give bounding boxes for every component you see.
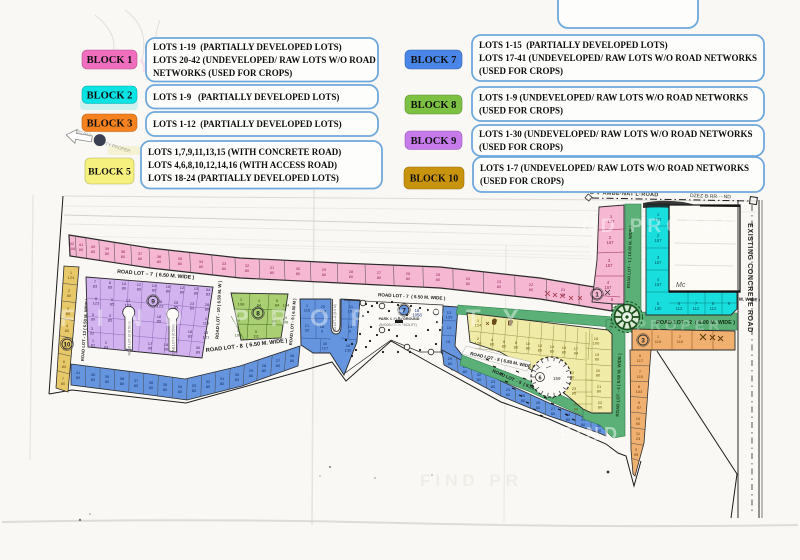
svg-text:LOTS 1-12 (PARTIALLY DEVELOPE: LOTS 1-12 (PARTIALLY DEVELOPED LOTS) <box>153 119 342 129</box>
svg-text:110: 110 <box>677 339 684 344</box>
svg-text:LOTS 17-41 (UNDEVELOPED/ RAW L: LOTS 17-41 (UNDEVELOPED/ RAW LOTS W/O RO… <box>479 53 757 63</box>
svg-text:112: 112 <box>710 306 717 311</box>
svg-text:LOTS 4,6,8,10,12,14,16 (WITH A: LOTS 4,6,8,10,12,14,16 (WITH ACCESS ROAD… <box>148 160 337 170</box>
svg-text:83: 83 <box>188 334 193 339</box>
svg-text:120: 120 <box>475 341 482 346</box>
svg-text:80: 80 <box>91 377 96 382</box>
svg-text:132: 132 <box>345 348 352 353</box>
svg-text:NETWORKS (USED FOR CROPS): NETWORKS (USED FOR CROPS) <box>153 68 292 78</box>
svg-text:80: 80 <box>105 251 110 256</box>
svg-text:Mc: Mc <box>676 282 686 289</box>
svg-text:108: 108 <box>235 333 242 338</box>
svg-text:117: 117 <box>322 346 329 351</box>
svg-text:112: 112 <box>676 306 683 311</box>
svg-text:121: 121 <box>203 335 210 340</box>
svg-text:80: 80 <box>163 387 168 392</box>
svg-text:80: 80 <box>235 377 240 382</box>
svg-text:80: 80 <box>79 247 84 252</box>
svg-text:80: 80 <box>105 379 110 384</box>
svg-text:157: 157 <box>606 263 614 268</box>
svg-text:80: 80 <box>121 254 126 259</box>
svg-text:BLOCK 9: BLOCK 9 <box>411 136 457 147</box>
svg-text:BLOCK 3: BLOCK 3 <box>87 118 133 129</box>
svg-text:80: 80 <box>406 276 411 281</box>
svg-text:157: 157 <box>655 282 663 287</box>
svg-text:80: 80 <box>550 349 555 354</box>
svg-text:1: 1 <box>595 292 599 299</box>
svg-text:80: 80 <box>61 381 66 386</box>
svg-text:LOTS 1,7,9,11,13,15 (WITH CONC: LOTS 1,7,9,11,13,15 (WITH CONCRETE ROAD) <box>148 147 341 157</box>
svg-text:80: 80 <box>491 384 496 389</box>
svg-text:112: 112 <box>693 306 700 311</box>
svg-text:80: 80 <box>134 383 139 388</box>
svg-text:157: 157 <box>655 238 663 243</box>
svg-text:130: 130 <box>655 306 663 311</box>
svg-text:81: 81 <box>91 343 96 348</box>
svg-text:157: 157 <box>655 260 663 265</box>
svg-text:80: 80 <box>551 411 556 416</box>
svg-text:110: 110 <box>655 339 662 344</box>
svg-text:LOTS 18-24 (PARTIALLY DEVELOPE: LOTS 18-24 (PARTIALLY DEVELOPED LOTS) <box>148 173 339 183</box>
svg-text:FIND PROPERTY: FIND PROPERTY <box>60 305 541 332</box>
svg-text:99: 99 <box>634 452 639 457</box>
svg-text:94: 94 <box>574 351 579 356</box>
svg-text:LOTS 1-7 (UNDEVELOPED/ RAW LOT: LOTS 1-7 (UNDEVELOPED/ RAW LOTS W/O ROAD… <box>480 163 749 173</box>
svg-text:97: 97 <box>637 405 642 410</box>
svg-text:80: 80 <box>595 357 600 362</box>
svg-text:80: 80 <box>220 381 225 386</box>
svg-text:80: 80 <box>466 281 471 286</box>
svg-text:80: 80 <box>296 271 301 276</box>
svg-text:83: 83 <box>206 292 211 297</box>
svg-text:157: 157 <box>607 240 615 245</box>
svg-text:80: 80 <box>120 381 125 386</box>
svg-text:(USED FOR CROPS): (USED FOR CROPS) <box>479 142 563 152</box>
svg-text:80: 80 <box>157 259 162 264</box>
svg-text:80: 80 <box>436 277 441 282</box>
svg-text:EXISTING CONCRETE ROAD: EXISTING CONCRETE ROAD <box>746 223 753 333</box>
svg-text:80: 80 <box>137 287 142 292</box>
svg-text:LOTS 1-15 (PARTIALLY DEVELOPE: LOTS 1-15 (PARTIALLY DEVELOPED LOTS) <box>479 40 668 50</box>
svg-text:LOTS 1-19 (PARTIALLY DEVELOPE: LOTS 1-19 (PARTIALLY DEVELOPED LOTS) <box>153 42 342 52</box>
svg-text:80: 80 <box>448 361 453 366</box>
svg-text:80: 80 <box>536 405 541 410</box>
svg-text:85: 85 <box>108 285 113 290</box>
svg-text:80: 80 <box>178 261 183 266</box>
svg-text:103: 103 <box>636 389 643 394</box>
svg-text:80: 80 <box>276 363 281 368</box>
svg-text:80: 80 <box>596 373 601 378</box>
svg-text:ND PROPER: ND PROPER <box>582 216 740 237</box>
svg-text:80: 80 <box>566 417 571 422</box>
svg-text:80: 80 <box>463 369 468 374</box>
svg-text:80: 80 <box>514 345 519 350</box>
svg-text:80: 80 <box>122 286 127 291</box>
svg-text:90: 90 <box>574 407 579 412</box>
svg-text:80: 80 <box>290 358 295 363</box>
svg-text:80: 80 <box>538 348 543 353</box>
svg-text:157: 157 <box>605 285 613 290</box>
svg-text:80: 80 <box>62 364 67 369</box>
svg-text:110: 110 <box>637 374 644 379</box>
svg-text:BLOCK 2: BLOCK 2 <box>87 90 133 101</box>
svg-text:117: 117 <box>637 358 644 363</box>
svg-text:80: 80 <box>598 405 603 410</box>
svg-text:80: 80 <box>502 344 507 349</box>
svg-text:80: 80 <box>597 389 602 394</box>
svg-text:80: 80 <box>562 350 567 355</box>
svg-text:80: 80 <box>178 389 183 394</box>
svg-text:80: 80 <box>206 384 211 389</box>
svg-text:6: 6 <box>538 376 541 382</box>
svg-text:BLOCK 8: BLOCK 8 <box>411 100 457 111</box>
svg-text:(USED FOR CROPS): (USED FOR CROPS) <box>480 176 564 186</box>
svg-text:111: 111 <box>253 334 260 339</box>
svg-text:80: 80 <box>91 249 96 254</box>
svg-text:80: 80 <box>152 288 157 293</box>
svg-text:80: 80 <box>67 293 72 298</box>
svg-text:80: 80 <box>506 392 511 397</box>
svg-text:90: 90 <box>636 421 641 426</box>
svg-text:80: 80 <box>322 272 327 277</box>
svg-text:80: 80 <box>349 274 354 279</box>
svg-text:LOTS 1-9 (PARTIALLY DEVELOPE: LOTS 1-9 (PARTIALLY DEVELOPED LOTS) <box>153 92 339 102</box>
svg-text:80: 80 <box>222 266 227 271</box>
svg-text:10: 10 <box>64 343 71 349</box>
svg-text:80: 80 <box>262 368 267 373</box>
svg-text:83: 83 <box>93 284 98 289</box>
svg-text:93: 93 <box>104 345 109 350</box>
svg-text:80: 80 <box>497 284 502 289</box>
svg-text:99: 99 <box>164 347 169 352</box>
svg-text:80: 80 <box>490 342 495 347</box>
svg-text:80: 80 <box>199 264 204 269</box>
svg-text:80: 80 <box>138 256 143 261</box>
svg-text:80: 80 <box>149 385 154 390</box>
svg-text:80: 80 <box>526 346 531 351</box>
svg-text:80: 80 <box>76 375 81 380</box>
svg-text:80: 80 <box>180 290 185 295</box>
svg-text:80: 80 <box>529 287 534 292</box>
svg-text:89: 89 <box>196 350 201 355</box>
svg-text:BLOCK 1: BLOCK 1 <box>87 55 133 66</box>
svg-text:(USED FOR CROPS): (USED FOR CROPS) <box>479 66 563 76</box>
svg-text:BLOCK 7: BLOCK 7 <box>411 55 457 66</box>
svg-text:FIND PR: FIND PR <box>420 471 523 490</box>
svg-text:159: 159 <box>553 376 561 381</box>
svg-text:80: 80 <box>521 398 526 403</box>
svg-text:LOTS 1-9 (UNDEVELOPED/ RAW LOT: LOTS 1-9 (UNDEVELOPED/ RAW LOTS W/O ROAD… <box>479 93 748 103</box>
svg-text:85: 85 <box>572 391 577 396</box>
svg-text:3: 3 <box>641 338 645 345</box>
svg-text:80: 80 <box>270 270 275 275</box>
svg-text:106: 106 <box>69 246 76 251</box>
svg-text:LOTS 1-30 (UNDEVELOPED/ RAW LO: LOTS 1-30 (UNDEVELOPED/ RAW LOTS W/O ROA… <box>479 129 752 139</box>
svg-text:80: 80 <box>377 275 382 280</box>
svg-text:80: 80 <box>477 377 482 382</box>
svg-text:100: 100 <box>593 341 600 346</box>
svg-text:BLOCK 5: BLOCK 5 <box>88 167 131 178</box>
svg-text:80: 80 <box>245 268 250 273</box>
svg-text:23: 23 <box>636 436 641 441</box>
svg-text:BLOCK 10: BLOCK 10 <box>410 174 459 185</box>
svg-text:LOTS 20-42 (UNDEVELOPED/ RAW L: LOTS 20-42 (UNDEVELOPED/ RAW LOTS W/O RO… <box>153 55 376 65</box>
svg-text:PROPER: PROPER <box>636 317 723 334</box>
svg-text:80: 80 <box>192 388 197 393</box>
svg-text:(USED FOR CROPS): (USED FOR CROPS) <box>479 106 563 116</box>
svg-text:99: 99 <box>148 346 153 351</box>
svg-text:FIND: FIND <box>560 424 622 444</box>
svg-text:15: 15 <box>446 339 451 344</box>
svg-text:80: 80 <box>194 291 199 296</box>
svg-text:80: 80 <box>249 373 254 378</box>
svg-text:124: 124 <box>68 275 75 280</box>
svg-text:80: 80 <box>166 289 171 294</box>
